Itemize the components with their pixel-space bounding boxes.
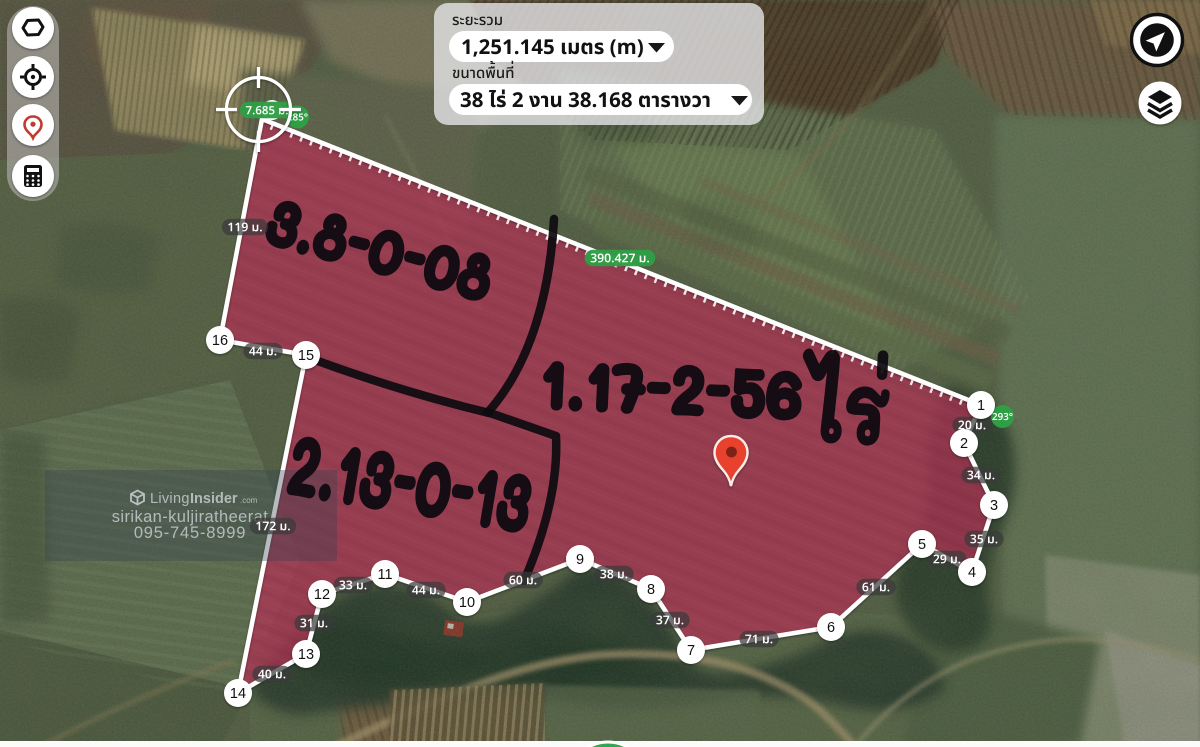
svg-text:16: 16 bbox=[212, 333, 228, 349]
svg-text:11: 11 bbox=[377, 567, 392, 583]
svg-text:5: 5 bbox=[918, 537, 926, 553]
svg-text:Living: Living bbox=[150, 491, 190, 507]
svg-text:13: 13 bbox=[298, 647, 314, 663]
svg-text:8: 8 bbox=[647, 582, 655, 598]
svg-text:095-745-8999: 095-745-8999 bbox=[134, 524, 246, 542]
svg-text:10: 10 bbox=[459, 595, 475, 611]
svg-text:15: 15 bbox=[298, 348, 314, 364]
svg-text:7: 7 bbox=[687, 643, 695, 659]
svg-text:6: 6 bbox=[827, 620, 835, 636]
svg-text:12: 12 bbox=[314, 587, 330, 603]
svg-text:.com: .com bbox=[240, 496, 258, 505]
svg-text:3: 3 bbox=[990, 498, 998, 514]
svg-text:9: 9 bbox=[576, 552, 584, 568]
svg-text:14: 14 bbox=[230, 686, 246, 702]
svg-text:2: 2 bbox=[960, 436, 968, 452]
svg-text:Insider: Insider bbox=[190, 491, 238, 507]
svg-text:4: 4 bbox=[968, 565, 976, 581]
svg-text:1: 1 bbox=[977, 398, 985, 414]
